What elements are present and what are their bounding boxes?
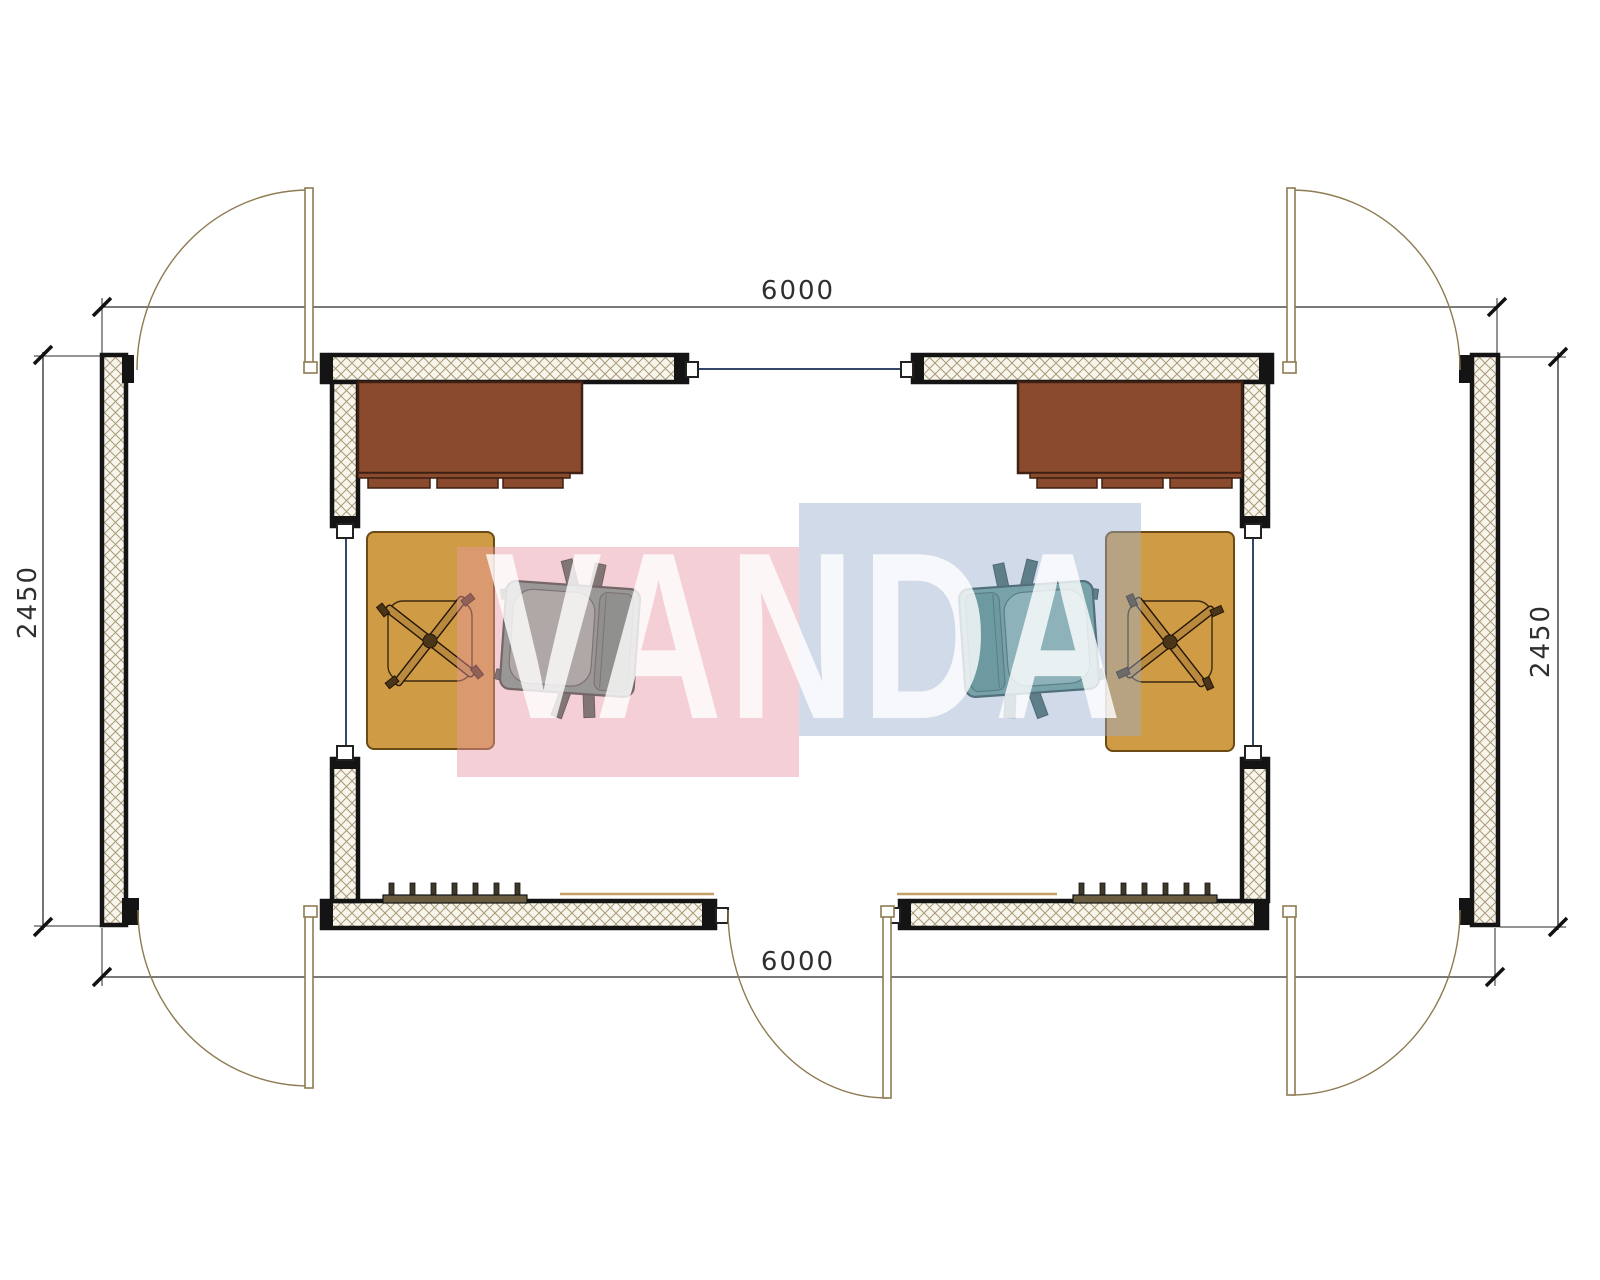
wall-bottom-left-cap-a (320, 899, 333, 930)
wall-bottom-left-module (322, 901, 715, 928)
door-bottom-right-hinge (1283, 906, 1296, 917)
door-top-right (1283, 188, 1460, 373)
wall-left-top-cap (122, 355, 134, 383)
dim-text-bottom: 6000 (761, 947, 835, 977)
door-bottom-middle-arc (728, 910, 887, 1098)
door-bottom-right-leaf (1287, 908, 1295, 1095)
watermark-text: VANDA (485, 503, 1128, 769)
partition-stub-right-upper (1242, 382, 1268, 526)
radiator-left (383, 883, 527, 903)
door-top-left-arc (137, 190, 309, 370)
opening-marker (686, 362, 698, 377)
wall-left-bottom-cap (122, 898, 139, 925)
floor-plan-drawing: 6000 6000 2450 2450 (0, 0, 1600, 1280)
dim-ext-left (34, 356, 102, 926)
wall-bottom-right-module (900, 901, 1267, 928)
door-bottom-left-leaf (305, 908, 313, 1088)
door-bottom-middle (728, 906, 894, 1098)
floor-plan-canvas: 6000 6000 2450 2450 (0, 0, 1600, 1280)
opening-marker (1245, 746, 1261, 760)
wall-top-right-cap-b (1259, 353, 1272, 384)
wall-left (102, 355, 126, 925)
door-top-right-hinge (1283, 362, 1296, 373)
wall-right-top-cap (1459, 355, 1474, 383)
partition-stub-right-lower (1242, 759, 1268, 901)
radiator-bar (1073, 895, 1217, 903)
door-bottom-middle-leaf (883, 908, 891, 1098)
door-bottom-right-arc (1291, 910, 1460, 1095)
door-bottom-right (1283, 906, 1460, 1095)
wall-bottom-left-cap-b (702, 899, 715, 930)
wall-top-right-module (913, 355, 1272, 382)
opening-marker (337, 746, 353, 760)
door-bottom-left-arc (138, 910, 309, 1086)
partition-stub-left-lower (332, 759, 358, 901)
door-bottom-left (138, 906, 317, 1088)
wall-top-left-module (322, 355, 687, 382)
opening-marker (337, 524, 353, 538)
dim-text-left: 2450 (13, 565, 43, 639)
door-top-left (137, 188, 317, 373)
desk-right (1018, 382, 1242, 488)
wall-bottom-right-cap-b (1254, 899, 1267, 930)
watermark: VANDA (457, 503, 1141, 777)
radiator-right (1073, 883, 1217, 903)
door-top-right-leaf (1287, 188, 1295, 368)
door-top-left-hinge (304, 362, 317, 373)
door-bottom-left-hinge (304, 906, 317, 917)
opening-marker (716, 908, 728, 923)
door-top-right-arc (1291, 190, 1460, 370)
partition-stub-left-upper (332, 382, 358, 526)
wall-right (1472, 355, 1498, 925)
radiator-bar (383, 895, 527, 903)
dim-text-right: 2450 (1526, 604, 1556, 678)
wall-top-left-cap-a (320, 353, 333, 384)
wall-right-bottom-cap (1459, 898, 1474, 925)
door-bottom-middle-hinge (881, 906, 894, 917)
dim-text-top: 6000 (761, 276, 835, 306)
opening-marker (901, 362, 913, 377)
door-top-left-leaf (305, 188, 313, 368)
opening-marker (1245, 524, 1261, 538)
desk-left (358, 382, 582, 488)
